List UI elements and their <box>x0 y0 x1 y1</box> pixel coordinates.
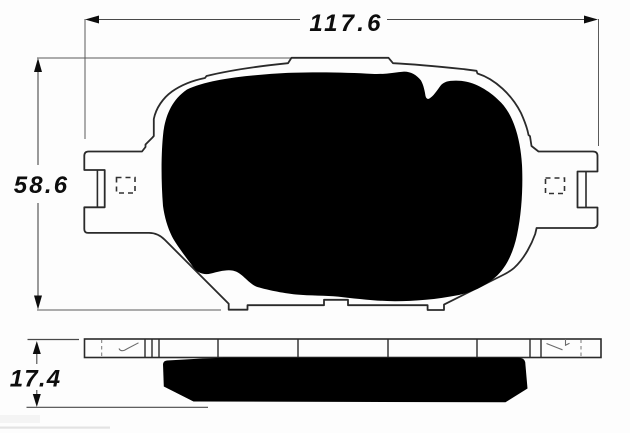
svg-text:117.6: 117.6 <box>309 10 383 37</box>
svg-text:58.6: 58.6 <box>14 172 70 199</box>
svg-text:17.4: 17.4 <box>10 366 62 393</box>
